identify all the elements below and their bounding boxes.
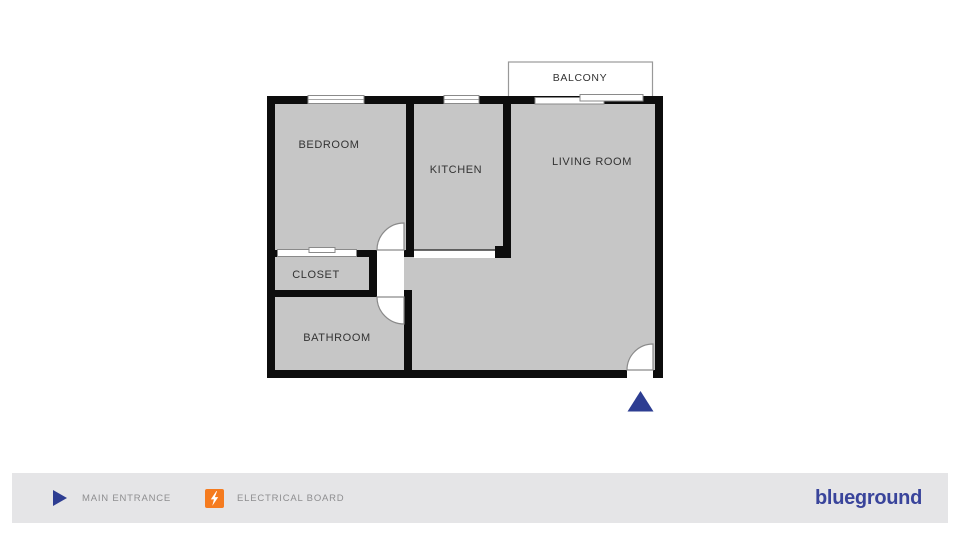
room-label-closet: CLOSET [292,269,340,281]
legend-electrical-board: ELECTRICAL BOARD [205,473,344,523]
room-label-bedroom: BEDROOM [298,139,359,151]
hallway-and-door-openings [377,249,404,298]
lightning-bolt-icon [208,491,221,506]
wall-kitchen-corner-stub [495,246,511,258]
room-label-balcony: BALCONY [553,72,607,84]
room-label-bathroom: BATHROOM [303,332,371,344]
wall-kitchen-living [503,102,511,252]
balcony-door-panel [580,95,643,102]
wall-bottom [267,370,663,378]
legend-bar: MAIN ENTRANCE ELECTRICAL BOARD bluegroun… [12,473,948,523]
wall-bathroom-right [404,290,412,378]
wall-bedroom-kitchen [406,102,414,257]
electrical-board-icon [205,489,224,508]
floor-plan: BALCONY BEDROOM KITCHEN LIVING ROOM CLOS… [0,0,960,460]
legend-main-entrance: MAIN ENTRANCE [52,473,171,523]
floor-plan-page: BALCONY BEDROOM KITCHEN LIVING ROOM CLOS… [0,0,960,540]
wall-closet-right [369,255,377,297]
room-label-living-room: LIVING ROOM [552,156,632,168]
main-entrance-label: MAIN ENTRANCE [82,493,171,504]
wall-right [655,96,663,378]
main-entrance-marker [628,391,654,412]
room-label-kitchen: KITCHEN [430,164,482,176]
wall-left [267,96,275,378]
wall-closet-bottom [267,290,377,297]
electrical-board-label: ELECTRICAL BOARD [237,493,344,504]
closet-sliding-door-panel [309,248,335,253]
blueground-logo: blueground [815,473,922,523]
main-entrance-icon [52,489,68,507]
kitchen-opening [414,250,495,259]
